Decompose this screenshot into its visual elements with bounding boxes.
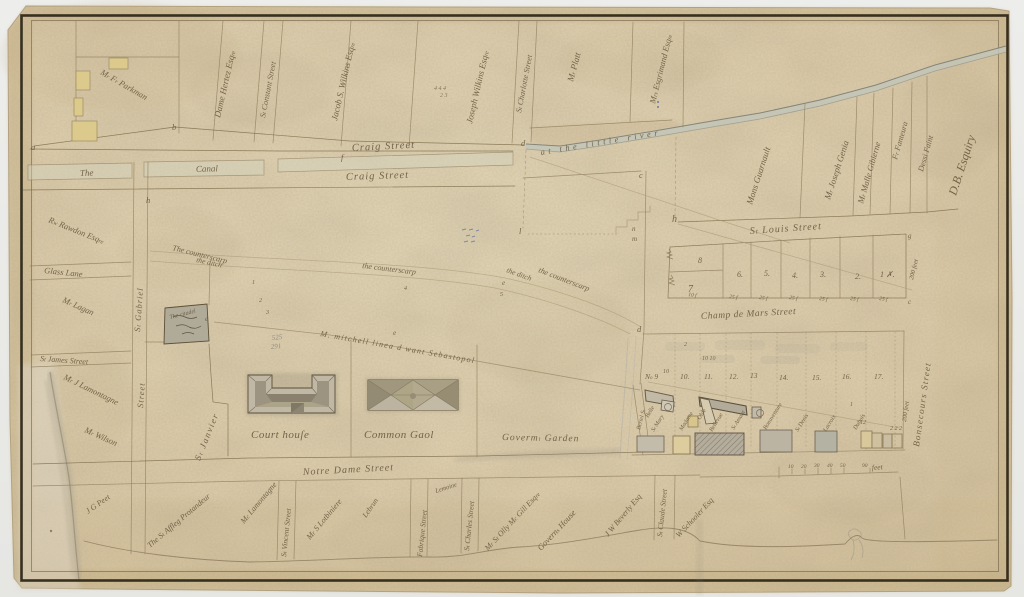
svg-text:10: 10 <box>663 369 669 375</box>
svg-text:a: a <box>31 142 35 152</box>
svg-text:4 4 4: 4 4 4 <box>434 85 446 92</box>
svg-text:Common Gaol: Common Gaol <box>364 429 434 441</box>
svg-text:b: b <box>172 122 176 132</box>
svg-text:2 3: 2 3 <box>440 93 448 99</box>
svg-text:e: e <box>502 279 505 287</box>
svg-text:Govermt Garden: Govermt Garden <box>502 433 579 444</box>
svg-text:12: 12 <box>860 420 866 426</box>
svg-text:Craig Street: Craig Street <box>346 170 410 183</box>
svg-text:1: 1 <box>850 402 853 408</box>
svg-text:90: 90 <box>862 463 868 469</box>
svg-text:50: 50 <box>840 463 846 469</box>
svg-text:e: e <box>205 315 208 323</box>
svg-text:16.: 16. <box>842 372 852 381</box>
svg-text:c: c <box>639 170 643 180</box>
svg-text:h: h <box>146 195 150 205</box>
svg-text:8: 8 <box>698 256 702 265</box>
svg-text:291: 291 <box>270 342 281 351</box>
svg-text:Street: Street <box>135 382 147 408</box>
svg-text:12.: 12. <box>729 372 739 381</box>
svg-text:g: g <box>908 232 912 240</box>
svg-text:2 2 2: 2 2 2 <box>890 426 902 432</box>
svg-text:13: 13 <box>750 371 758 380</box>
svg-text:4.: 4. <box>792 271 798 280</box>
svg-text:e: e <box>393 329 396 337</box>
svg-text:11.: 11. <box>704 372 713 381</box>
svg-text:h: h <box>672 214 677 225</box>
svg-text:40: 40 <box>827 462 833 469</box>
svg-text:4: 4 <box>404 285 407 292</box>
svg-text:10: 10 <box>788 464 794 470</box>
svg-text:14.: 14. <box>779 373 789 382</box>
svg-text:The: The <box>80 168 94 178</box>
svg-text:30: 30 <box>813 463 820 469</box>
svg-text:feet: feet <box>872 462 884 472</box>
svg-text:5: 5 <box>500 292 503 298</box>
svg-text:n: n <box>632 225 636 233</box>
svg-text:1: 1 <box>252 280 255 286</box>
svg-text:17.: 17. <box>874 372 884 381</box>
svg-text:3: 3 <box>265 310 269 316</box>
svg-text:15.: 15. <box>812 373 822 382</box>
svg-text:10.: 10. <box>680 372 690 381</box>
svg-text:6.: 6. <box>737 270 743 279</box>
svg-text:3.: 3. <box>819 270 826 279</box>
svg-text:2.: 2. <box>855 272 861 281</box>
svg-text:525: 525 <box>271 333 283 342</box>
svg-text:Court houſe: Court houſe <box>251 429 309 441</box>
svg-text:20: 20 <box>801 464 807 470</box>
svg-text:5.: 5. <box>764 269 770 278</box>
svg-text:m: m <box>632 235 637 243</box>
svg-text:2: 2 <box>259 298 262 304</box>
svg-text:1 ✗.: 1 ✗. <box>880 270 895 279</box>
svg-text:Canal: Canal <box>196 163 219 174</box>
